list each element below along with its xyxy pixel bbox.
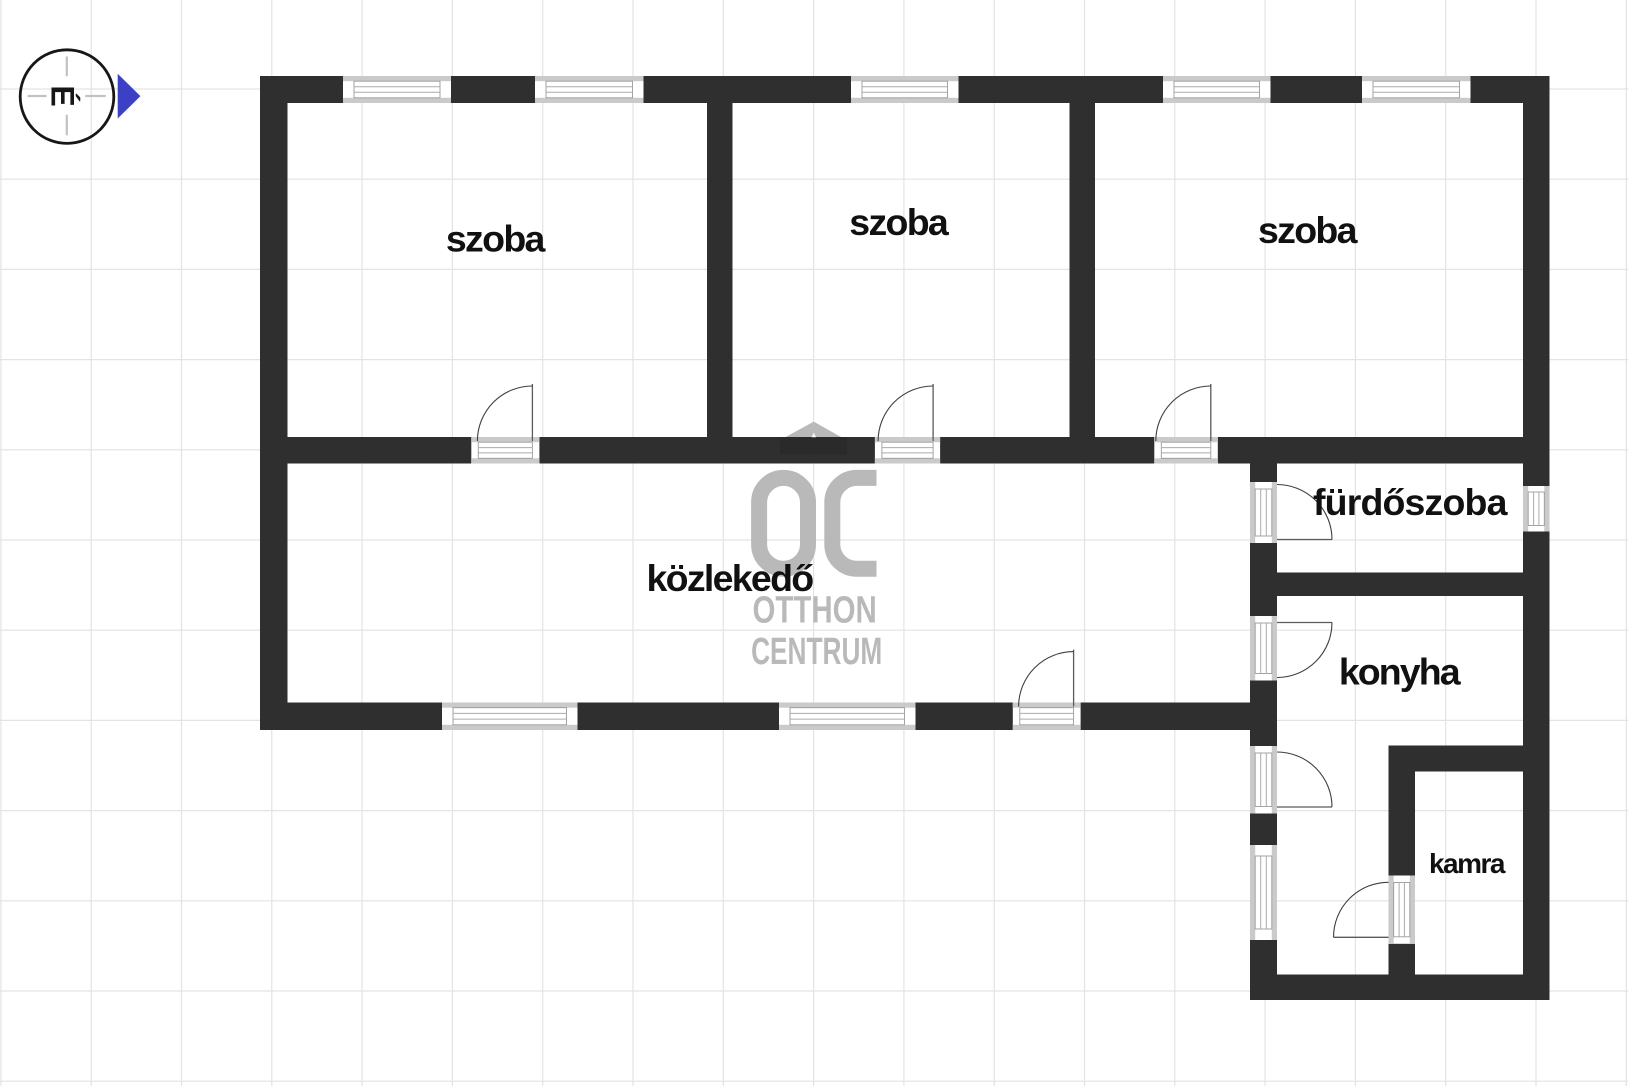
svg-text:konyha: konyha [1339, 651, 1462, 693]
svg-text:közlekedő: közlekedő [646, 557, 813, 599]
svg-text:szoba: szoba [849, 201, 950, 243]
svg-text:fürdőszoba: fürdőszoba [1313, 481, 1509, 523]
svg-text:É: É [45, 85, 81, 106]
svg-text:szoba: szoba [1258, 209, 1359, 251]
svg-text:szoba: szoba [446, 218, 547, 260]
svg-text:CENTRUM: CENTRUM [751, 631, 882, 673]
svg-text:kamra: kamra [1429, 848, 1506, 879]
